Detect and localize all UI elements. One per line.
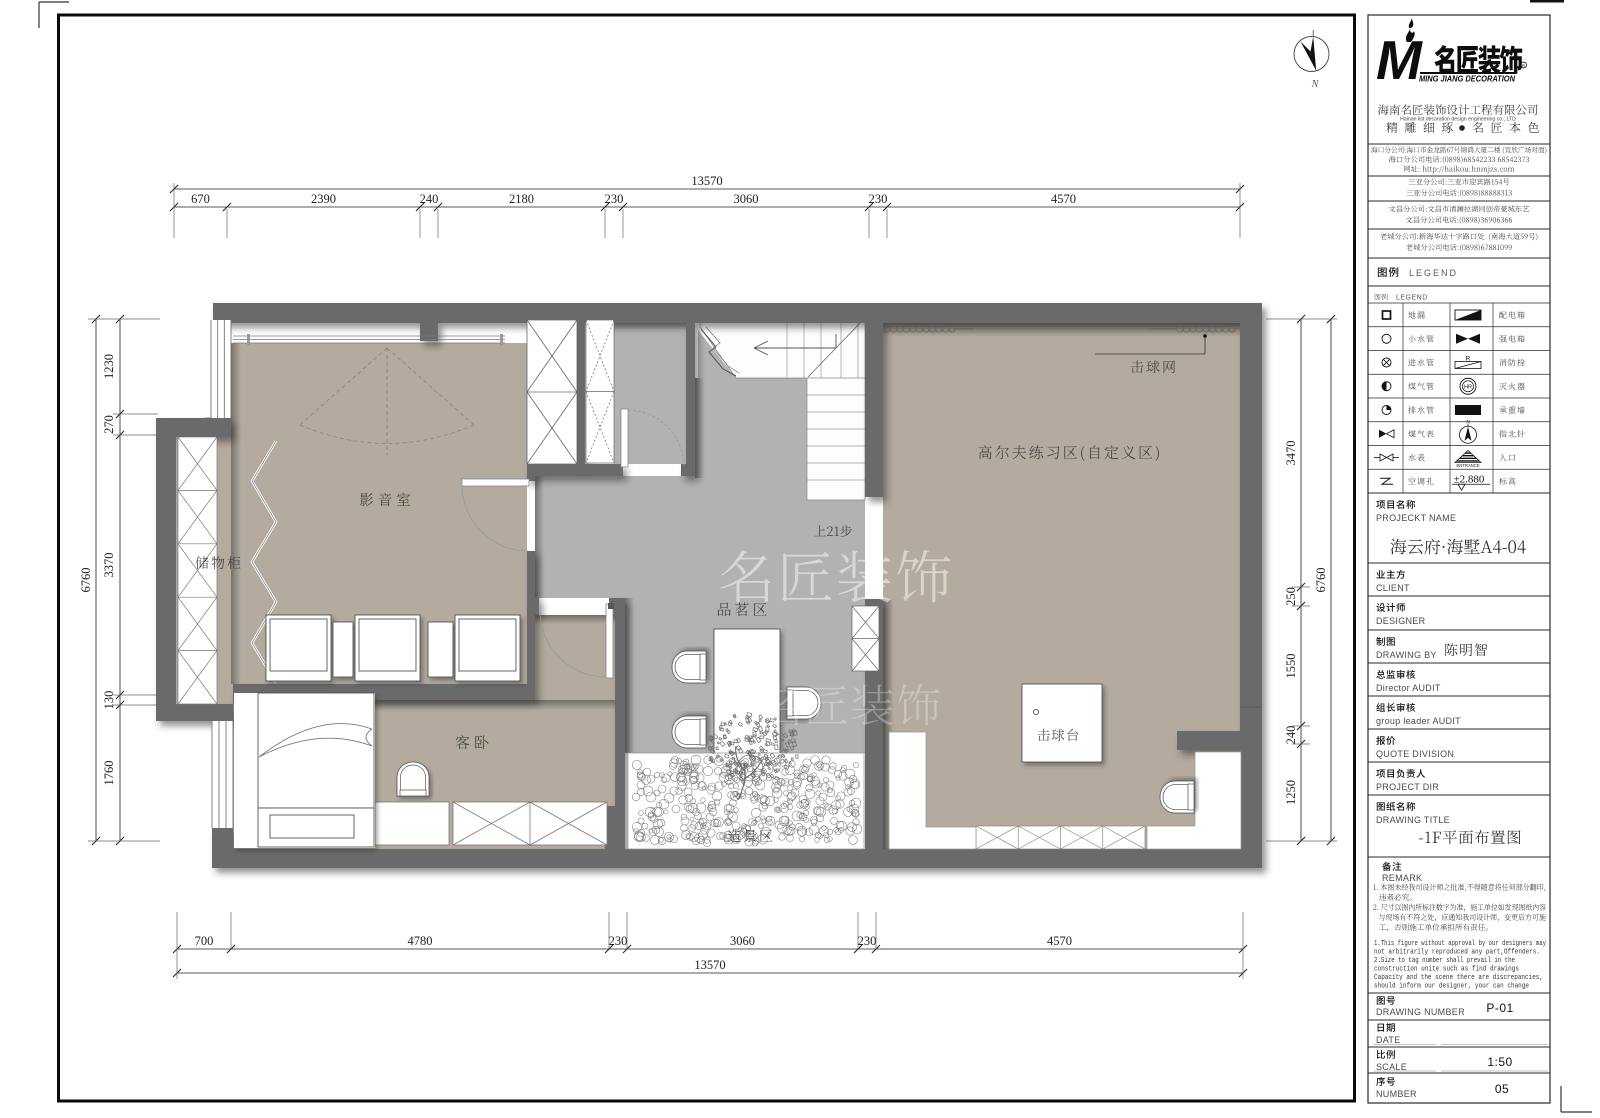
svg-text:PROJECT DIR: PROJECT DIR xyxy=(1376,782,1439,792)
svg-text:1.This figure without approval: 1.This figure without approval by our de… xyxy=(1374,940,1546,948)
svg-text:DRAWING TITLE: DRAWING TITLE xyxy=(1376,815,1450,825)
svg-text:group leader AUDIT: group leader AUDIT xyxy=(1376,716,1461,726)
svg-text:REMARK: REMARK xyxy=(1382,873,1422,883)
svg-text:CLIENT: CLIENT xyxy=(1376,583,1410,593)
svg-text:M: M xyxy=(1376,29,1423,91)
svg-text:05: 05 xyxy=(1495,1082,1509,1096)
svg-text:670: 670 xyxy=(191,192,210,206)
svg-text:R: R xyxy=(1466,356,1471,363)
svg-text:2180: 2180 xyxy=(509,192,534,206)
svg-text:2.Size to tag number shall pre: 2.Size to tag number shall prevail in th… xyxy=(1374,957,1515,965)
svg-text:3470: 3470 xyxy=(1284,441,1298,466)
svg-text:should inform our designer, yo: should inform our designer, your can cha… xyxy=(1374,983,1529,991)
svg-text:N: N xyxy=(1466,420,1470,425)
svg-text:MING JIANG DECORATION: MING JIANG DECORATION xyxy=(1419,75,1516,84)
svg-text:4570: 4570 xyxy=(1051,192,1076,206)
svg-text:1760: 1760 xyxy=(102,761,116,786)
svg-text:ENTRANCE: ENTRANCE xyxy=(1456,463,1479,468)
svg-text:LEGEND: LEGEND xyxy=(1396,295,1428,302)
svg-text:HR: HR xyxy=(1464,384,1472,390)
svg-text:3370: 3370 xyxy=(102,553,116,578)
svg-text:230: 230 xyxy=(609,934,628,948)
svg-text:DRAWING BY: DRAWING BY xyxy=(1376,650,1437,660)
svg-text:1550: 1550 xyxy=(1284,654,1298,679)
svg-text:construction unite such as fin: construction unite such as find drawings xyxy=(1374,966,1519,974)
svg-text:13570: 13570 xyxy=(691,174,722,188)
svg-text:Director AUDIT: Director AUDIT xyxy=(1376,683,1441,693)
svg-text:3060: 3060 xyxy=(730,934,755,948)
svg-text:240: 240 xyxy=(1284,726,1298,745)
svg-text:1250: 1250 xyxy=(1284,780,1298,805)
svg-text:6760: 6760 xyxy=(79,568,93,593)
svg-text:N: N xyxy=(1311,79,1320,90)
svg-text:±2.880: ±2.880 xyxy=(1454,473,1485,485)
svg-text:SCALE: SCALE xyxy=(1376,1062,1407,1072)
svg-text:Hainan list decoration design: Hainan list decoration design engineerin… xyxy=(1400,117,1516,123)
svg-text:130: 130 xyxy=(102,691,116,710)
svg-text:NUMBER: NUMBER xyxy=(1376,1089,1417,1099)
svg-text:13570: 13570 xyxy=(694,958,725,972)
svg-text:230: 230 xyxy=(858,934,877,948)
svg-text:QUOTE DIVISION: QUOTE DIVISION xyxy=(1376,749,1454,759)
svg-text:700: 700 xyxy=(195,934,214,948)
svg-text:2390: 2390 xyxy=(311,192,336,206)
svg-text:230: 230 xyxy=(869,192,888,206)
svg-text:DESIGNER: DESIGNER xyxy=(1376,616,1426,626)
svg-text:P-01: P-01 xyxy=(1486,1001,1513,1015)
svg-text:not arbitrarily reproduced any: not arbitrarily reproduced any part,Offe… xyxy=(1374,949,1540,957)
svg-text:DRAWING NUMBER: DRAWING NUMBER xyxy=(1376,1007,1465,1017)
svg-text:4570: 4570 xyxy=(1047,934,1072,948)
svg-text:270: 270 xyxy=(102,415,116,434)
svg-text:6760: 6760 xyxy=(1314,568,1328,593)
svg-text:250: 250 xyxy=(1284,587,1298,606)
svg-text:LEGEND: LEGEND xyxy=(1409,268,1458,278)
svg-text:3060: 3060 xyxy=(734,192,759,206)
svg-text:4780: 4780 xyxy=(408,934,433,948)
svg-text:230: 230 xyxy=(605,192,624,206)
svg-text:1:50: 1:50 xyxy=(1487,1055,1512,1069)
svg-text:240: 240 xyxy=(420,192,439,206)
svg-text:1230: 1230 xyxy=(102,354,116,379)
svg-text:Capacity and the scene there a: Capacity and the scene there are discrep… xyxy=(1374,974,1543,982)
svg-text:PROJECKT NAME: PROJECKT NAME xyxy=(1376,513,1456,523)
svg-text:DATE: DATE xyxy=(1376,1035,1401,1045)
